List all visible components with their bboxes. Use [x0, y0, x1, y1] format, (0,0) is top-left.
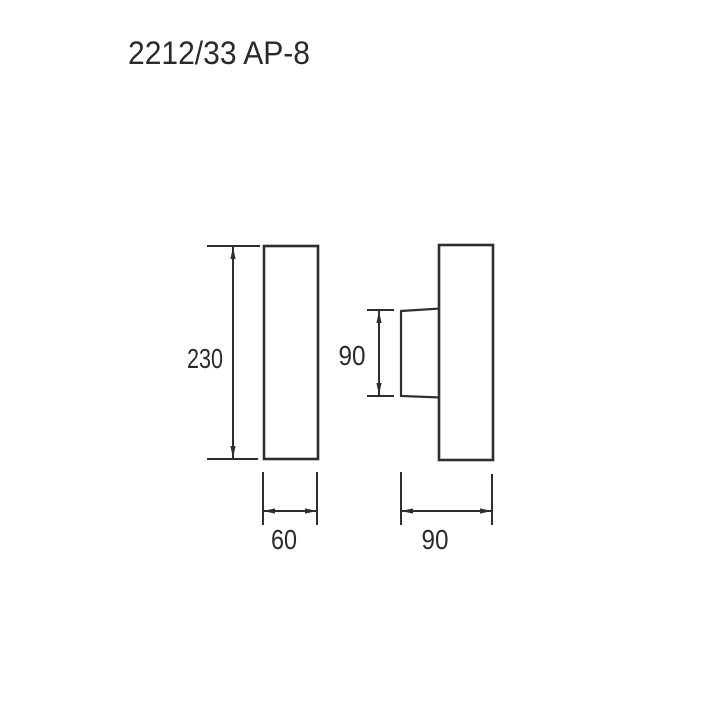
front-height-label: 230 — [187, 343, 223, 374]
side-view-projection — [401, 309, 440, 398]
front-width-label: 60 — [271, 524, 297, 555]
front-height-arrow-top — [230, 247, 235, 259]
front-view: 230 60 — [187, 246, 318, 555]
side-projection-arrow-bottom — [376, 383, 381, 395]
page-title: 2212/33 AP-8 — [128, 35, 310, 71]
front-height-arrow-bottom — [230, 446, 235, 458]
side-width-arrow-right — [480, 508, 492, 513]
side-width-arrow-left — [401, 508, 413, 513]
side-projection-arrow-top — [376, 311, 381, 323]
side-view-body — [439, 245, 493, 460]
front-width-arrow-right — [305, 508, 317, 513]
front-width-arrow-left — [263, 508, 275, 513]
side-view: 90 90 — [339, 245, 494, 555]
technical-drawing-page: 2212/33 AP-8 230 60 — [0, 0, 715, 715]
side-width-label: 90 — [422, 524, 449, 555]
dimension-drawing: 2212/33 AP-8 230 60 — [0, 0, 715, 715]
side-projection-label: 90 — [339, 340, 366, 371]
front-view-body — [264, 246, 318, 459]
